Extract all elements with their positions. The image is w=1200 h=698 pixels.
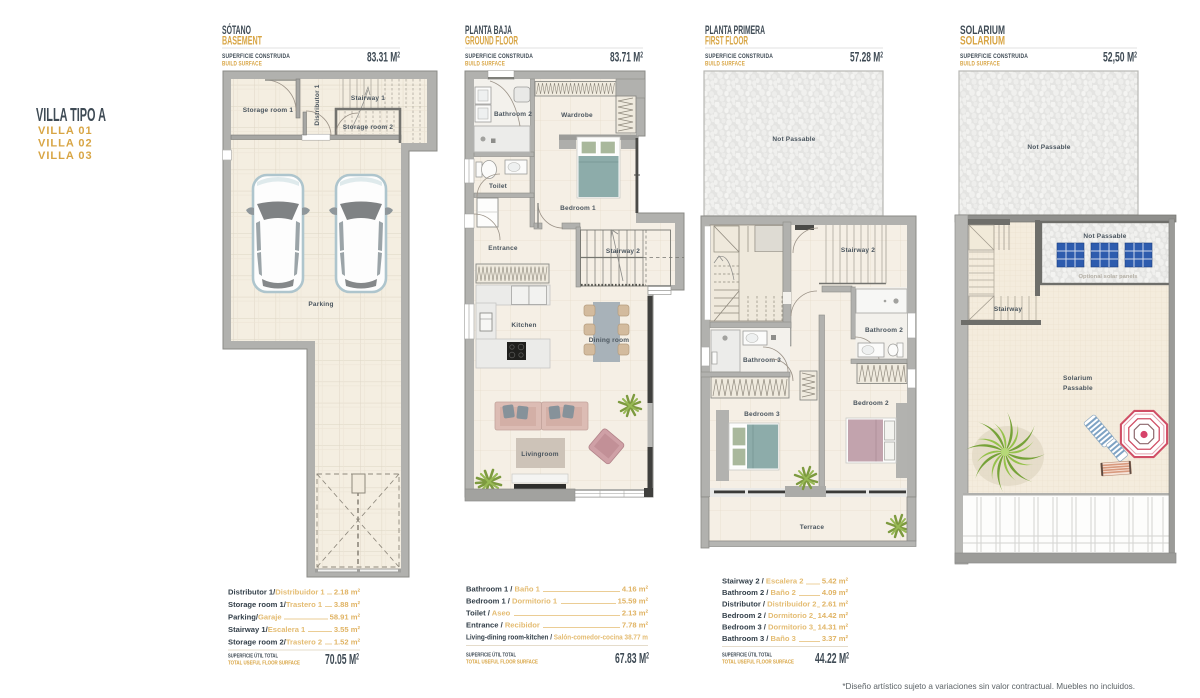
svg-text:Optional solar panels: Optional solar panels (1079, 274, 1138, 280)
svg-text:Bathroom 1 / Baño 1: Bathroom 1 / Baño 1 (466, 585, 541, 594)
svg-text:Passable: Passable (1063, 385, 1093, 392)
svg-text:15.59 m²: 15.59 m² (618, 597, 649, 606)
svg-text:Distributor 1/Distribuidor 1: Distributor 1/Distribuidor 1 (228, 588, 325, 597)
svg-text:1.52 m²: 1.52 m² (334, 638, 361, 647)
svg-text:Wardrobe: Wardrobe (561, 112, 593, 119)
svg-text:SUPERFICIE ÚTIL TOTAL: SUPERFICIE ÚTIL TOTAL (722, 652, 772, 659)
svg-text:4.16 m²: 4.16 m² (622, 585, 649, 594)
svg-text:FIRST FLOOR: FIRST FLOOR (705, 36, 748, 48)
svg-text:Livingroom: Livingroom (521, 451, 558, 458)
svg-text:Not Passable: Not Passable (1027, 144, 1070, 151)
svg-text:Parking/Garaje: Parking/Garaje (228, 613, 282, 622)
svg-text:TOTAL USEFUL FLOOR SURFACE: TOTAL USEFUL FLOOR SURFACE (228, 661, 300, 667)
svg-text:Entrance / Recibidor: Entrance / Recibidor (466, 621, 540, 630)
svg-text:Toilet / Aseo: Toilet / Aseo (466, 609, 511, 618)
svg-text:Solarium: Solarium (1063, 375, 1092, 382)
svg-text:Storage room 2: Storage room 2 (343, 124, 394, 131)
svg-text:SUPERFICIE CONSTRUIDA: SUPERFICIE CONSTRUIDA (705, 53, 773, 60)
svg-text:Bathroom 2: Bathroom 2 (865, 327, 903, 334)
svg-text:Stairway: Stairway (994, 306, 1023, 313)
svg-text:2.13 m²: 2.13 m² (622, 609, 649, 618)
svg-text:Living-dining room-kitchen / S: Living-dining room-kitchen / Salón-comed… (466, 633, 648, 642)
svg-text:Storage room 2/Trastero 2: Storage room 2/Trastero 2 (228, 638, 322, 647)
svg-text:GROUND FLOOR: GROUND FLOOR (465, 36, 518, 48)
svg-text:Bedroom 3 / Dormitorio 3: Bedroom 3 / Dormitorio 3 (722, 623, 813, 632)
svg-text:Bathroom 2: Bathroom 2 (494, 111, 532, 118)
svg-text:52,50 M2: 52,50 M2 (1103, 50, 1137, 65)
svg-text:BUILD SURFACE: BUILD SURFACE (705, 61, 745, 68)
svg-text:83.31 M2: 83.31 M2 (367, 50, 400, 65)
svg-text:5.42 m²: 5.42 m² (822, 577, 849, 586)
svg-text:83.71 M2: 83.71 M2 (610, 50, 643, 65)
svg-text:4.09 m²: 4.09 m² (822, 588, 849, 597)
svg-text:BASEMENT: BASEMENT (222, 36, 262, 48)
svg-text:3.37 m²: 3.37 m² (822, 634, 849, 643)
svg-text:Stairway 2: Stairway 2 (606, 248, 640, 255)
svg-text:Kitchen: Kitchen (511, 322, 536, 329)
svg-text:14.42 m²: 14.42 m² (818, 611, 849, 620)
svg-text:Bedroom 3: Bedroom 3 (744, 411, 780, 418)
svg-text:Bedroom 2 / Dormitorio 2: Bedroom 2 / Dormitorio 2 (722, 611, 813, 620)
svg-text:Bedroom 1 / Dormitorio 1: Bedroom 1 / Dormitorio 1 (466, 597, 558, 606)
svg-text:Bedroom 1: Bedroom 1 (560, 205, 596, 212)
svg-text:SOLARIUM: SOLARIUM (960, 36, 1005, 48)
svg-text:Distributor 1: Distributor 1 (314, 84, 321, 125)
svg-text:Distributor / Distribuidor 2: Distributor / Distribuidor 2 (722, 600, 817, 609)
svg-text:3.55 m²: 3.55 m² (334, 625, 361, 634)
svg-text:57.28 M2: 57.28 M2 (850, 50, 883, 65)
svg-text:SUPERFICIE CONSTRUIDA: SUPERFICIE CONSTRUIDA (222, 53, 290, 60)
svg-text:Stairway 1: Stairway 1 (351, 95, 385, 102)
svg-text:Toilet: Toilet (489, 183, 508, 190)
svg-text:TOTAL USEFUL FLOOR SURFACE: TOTAL USEFUL FLOOR SURFACE (466, 660, 538, 666)
svg-text:Storage room 1/Trastero 1: Storage room 1/Trastero 1 (228, 600, 323, 609)
svg-text:BUILD SURFACE: BUILD SURFACE (222, 61, 262, 68)
svg-text:2.61 m²: 2.61 m² (822, 600, 849, 609)
svg-text:67.83 M2: 67.83 M2 (615, 650, 649, 667)
svg-text:BUILD SURFACE: BUILD SURFACE (465, 61, 505, 68)
svg-text:SUPERFICIE CONSTRUIDA: SUPERFICIE CONSTRUIDA (960, 53, 1028, 60)
svg-text:2.18 m²: 2.18 m² (334, 588, 361, 597)
svg-text:*Diseño artístico sujeto a var: *Diseño artístico sujeto a variaciones s… (842, 682, 1135, 691)
svg-text:44.22 M2: 44.22 M2 (815, 650, 849, 667)
svg-text:Bathroom 3: Bathroom 3 (743, 357, 781, 364)
svg-text:SUPERFICIE CONSTRUIDA: SUPERFICIE CONSTRUIDA (465, 53, 533, 60)
svg-text:70.05 M2: 70.05 M2 (325, 651, 359, 668)
svg-text:VILLA 01: VILLA 01 (38, 125, 93, 137)
svg-text:VILLA 02: VILLA 02 (38, 138, 93, 150)
svg-text:3.88 m²: 3.88 m² (334, 600, 361, 609)
svg-text:14.31 m²: 14.31 m² (818, 623, 849, 632)
svg-text:Terrace: Terrace (800, 524, 825, 531)
svg-text:Bathroom 2 / Baño 2: Bathroom 2 / Baño 2 (722, 588, 796, 597)
svg-text:SUPERFICIE ÚTIL TOTAL: SUPERFICIE ÚTIL TOTAL (466, 652, 516, 659)
svg-text:Storage room 1: Storage room 1 (243, 107, 294, 114)
svg-text:Bathroom 3 / Baño 3: Bathroom 3 / Baño 3 (722, 634, 796, 643)
svg-text:VILLA TIPO A: VILLA TIPO A (36, 104, 106, 125)
svg-text:Not Passable: Not Passable (1083, 233, 1126, 240)
svg-text:Dining room: Dining room (589, 337, 629, 344)
svg-text:BUILD SURFACE: BUILD SURFACE (960, 61, 1000, 68)
svg-text:Parking: Parking (308, 301, 333, 308)
svg-text:VILLA 03: VILLA 03 (38, 150, 93, 162)
svg-text:Bedroom 2: Bedroom 2 (853, 400, 889, 407)
svg-text:SUPERFICIE ÚTIL TOTAL: SUPERFICIE ÚTIL TOTAL (228, 653, 278, 660)
svg-text:TOTAL USEFUL FLOOR SURFACE: TOTAL USEFUL FLOOR SURFACE (722, 660, 794, 666)
svg-text:Stairway 1/Escalera 1: Stairway 1/Escalera 1 (228, 625, 306, 634)
svg-text:Stairway 2 / Escalera 2: Stairway 2 / Escalera 2 (722, 577, 804, 586)
svg-text:Not Passable: Not Passable (772, 136, 815, 143)
svg-text:Stairway 2: Stairway 2 (841, 247, 875, 254)
svg-text:Entrance: Entrance (488, 245, 518, 252)
svg-text:58.91 m²: 58.91 m² (330, 613, 361, 622)
svg-text:7.78 m²: 7.78 m² (622, 621, 649, 630)
